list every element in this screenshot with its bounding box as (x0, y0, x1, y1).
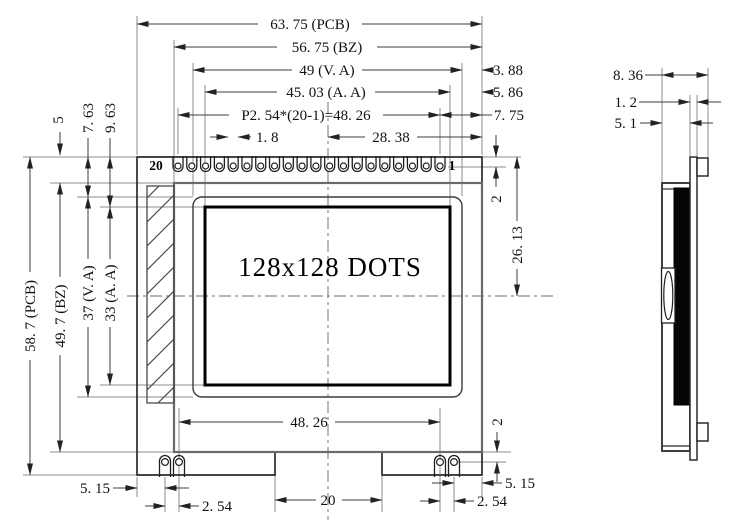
bottom-pin-hole (176, 459, 183, 466)
top-pin-hole (203, 163, 209, 169)
top-pin-hole (340, 163, 346, 169)
dim-va-right-margin: 3. 88 (493, 63, 523, 79)
top-pin-hole (423, 163, 429, 169)
dim-bottom-left-pitch: 2. 54 (202, 499, 233, 515)
display-text: 128x128 DOTS (238, 252, 422, 282)
top-pin-hole (216, 163, 222, 169)
dim-bezel-top-offset: 5 (51, 116, 67, 124)
dim-bottom-hole-offset: 2 (490, 418, 506, 426)
side-lcd-glass (674, 188, 690, 405)
bottom-pin-hole (437, 459, 444, 466)
dim-bottom-right-margin: 5. 15 (505, 476, 535, 492)
bottom-pin-row (160, 456, 460, 478)
side-bottom-pin-tab (697, 423, 708, 441)
dim-pcb-width: 63. 75 (PCB) (270, 17, 350, 33)
top-pin-hole (437, 163, 443, 169)
top-pin-hole (230, 163, 236, 169)
side-pcb (690, 157, 697, 460)
top-pin-hole (299, 163, 305, 169)
bottom-pin-hole (162, 459, 169, 466)
top-pin-hole (258, 163, 264, 169)
top-pin-hole (189, 163, 195, 169)
bottom-pin-hole (451, 459, 458, 466)
dim-pcb-height: 58. 7 (PCB) (23, 280, 39, 352)
dim-side-total-thickness: 8. 36 (613, 68, 644, 84)
dim-aa-right-margin: 5. 86 (493, 85, 524, 101)
dim-va-width: 49 (V. A) (299, 63, 354, 79)
dim-pin-pitch: P2. 54*(20-1)=48. 26 (241, 108, 371, 124)
pin-number-right: 1 (449, 158, 456, 173)
drawing-surface: 128x128 DOTS 20 1 63. 75 (PCB)56. 75 (BZ… (0, 0, 735, 524)
top-pin-hole (285, 163, 291, 169)
dim-side-pcb-thickness: 1. 2 (615, 95, 638, 111)
dim-bottom-right-pitch: 2. 54 (477, 494, 508, 510)
top-pin-hole (354, 163, 360, 169)
top-pin-row (173, 156, 445, 172)
dim-side-front-thickness: 5. 1 (615, 116, 638, 132)
dim-bezel-height: 49. 7 (BZ) (53, 285, 69, 348)
dim-bezel-width: 56. 75 (BZ) (292, 40, 362, 56)
dim-bottom-pin-span: 48. 26 (290, 415, 328, 431)
side-view (662, 157, 709, 460)
lcd-module-outline-drawing: 128x128 DOTS 20 1 63. 75 (PCB)56. 75 (BZ… (0, 0, 735, 524)
top-pin-hole (382, 163, 388, 169)
top-pin-hole (313, 163, 319, 169)
dim-aa-width: 45. 03 (A. A) (286, 85, 366, 101)
dim-pin1-right-margin: 7. 75 (494, 108, 524, 124)
top-pin-hole (327, 163, 333, 169)
top-pin-hole (368, 163, 374, 169)
dim-top-hole-offset: 2 (489, 195, 505, 203)
top-pin-hole (409, 163, 415, 169)
pin-number-left: 20 (149, 158, 163, 173)
dim-va-top-offset: 7. 63 (81, 103, 97, 133)
side-top-pin-tab (697, 158, 708, 176)
dim-notch-width: 20 (321, 493, 336, 509)
dim-pad-width: 1. 8 (256, 130, 279, 146)
top-pin-hole (272, 163, 278, 169)
dim-center-to-right: 28. 38 (372, 130, 410, 146)
dim-aa-height: 33 (A. A) (103, 264, 119, 321)
top-pin-hole (175, 163, 181, 169)
top-pin-hole (244, 163, 250, 169)
dim-bottom-left-margin: 5. 15 (80, 481, 110, 497)
dim-aa-top-offset: 9. 63 (103, 103, 119, 133)
dim-top-to-centerline: 26. 13 (510, 226, 526, 264)
dim-va-height: 37 (V. A) (81, 265, 97, 320)
top-pin-hole (396, 163, 402, 169)
